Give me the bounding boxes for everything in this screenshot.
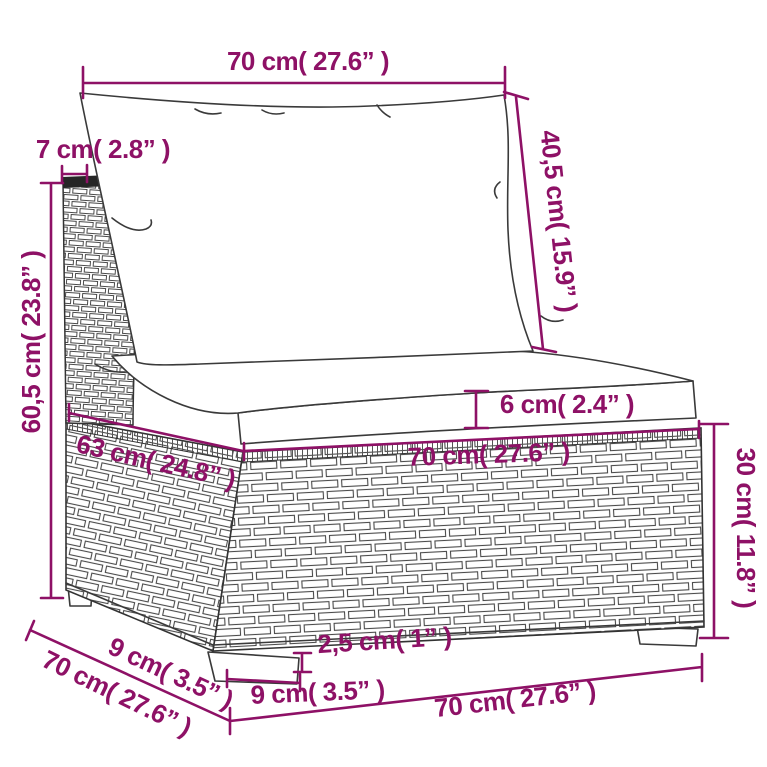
seat-cushion-wrinkle: [541, 316, 563, 321]
dim-label-backrest-thickness: 7 cm( 2.8” ): [36, 134, 170, 164]
dim-label-foot-width: 9 cm( 3.5” ): [250, 674, 385, 710]
dim-label-seat-cushion-thickness: 6 cm( 2.4” ): [500, 389, 634, 419]
dim-label-back-cushion-width: 70 cm( 27.6” ): [227, 46, 389, 76]
dim-label-back-cushion-height: 40,5 cm( 15.9” ): [534, 129, 583, 314]
dim-back-cushion-width: 70 cm( 27.6” ): [83, 46, 505, 98]
dim-base-height: 30 cm( 11.8” ): [700, 424, 761, 638]
dim-label-base-height: 30 cm( 11.8” ): [731, 448, 761, 609]
dimension-diagram-page: 70 cm( 27.6” ) 7 cm( 2.8” ) 40,5 cm( 15.…: [0, 0, 767, 767]
dim-label-backrest-height: 60,5 cm( 23.8” ): [16, 251, 46, 434]
sofa-dimension-diagram: 70 cm( 27.6” ) 7 cm( 2.8” ) 40,5 cm( 15.…: [0, 0, 767, 767]
dim-foot-height: 2,5 cm( 1” ): [294, 621, 452, 672]
dim-backrest-height: 60,5 cm( 23.8” ): [16, 183, 63, 598]
dim-label-total-width: 70 cm( 27.6” ): [433, 675, 597, 723]
dim-label-seat-width: 70 cm( 27.6” ): [407, 436, 570, 472]
